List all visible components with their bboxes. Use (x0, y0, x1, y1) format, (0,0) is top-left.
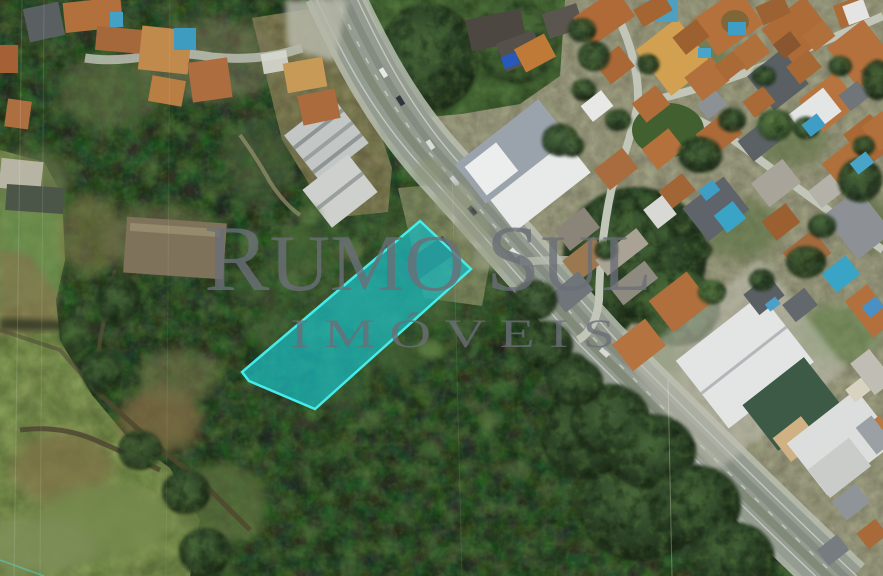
svg-text:I M Ó V E I S: I M Ó V E I S (290, 311, 615, 356)
svg-text:RUMO SUL: RUMO SUL (204, 207, 652, 311)
